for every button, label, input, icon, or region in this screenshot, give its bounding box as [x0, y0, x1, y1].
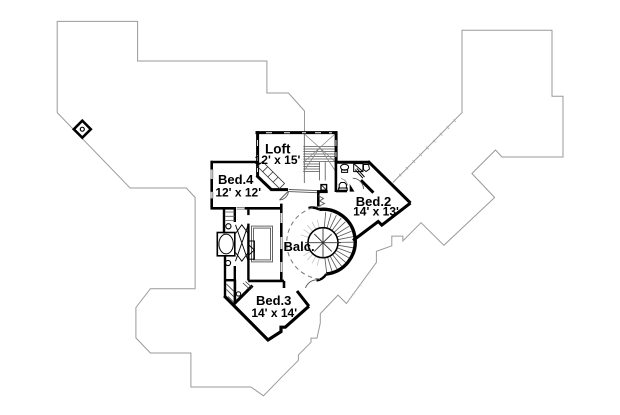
svg-text:14' x 13': 14' x 13': [353, 205, 399, 219]
svg-text:14' x 14': 14' x 14': [251, 306, 297, 320]
svg-text:12' x 12': 12' x 12': [215, 186, 261, 200]
svg-text:Balc.: Balc.: [284, 239, 315, 254]
svg-text:12' x 15': 12' x 15': [255, 153, 301, 167]
